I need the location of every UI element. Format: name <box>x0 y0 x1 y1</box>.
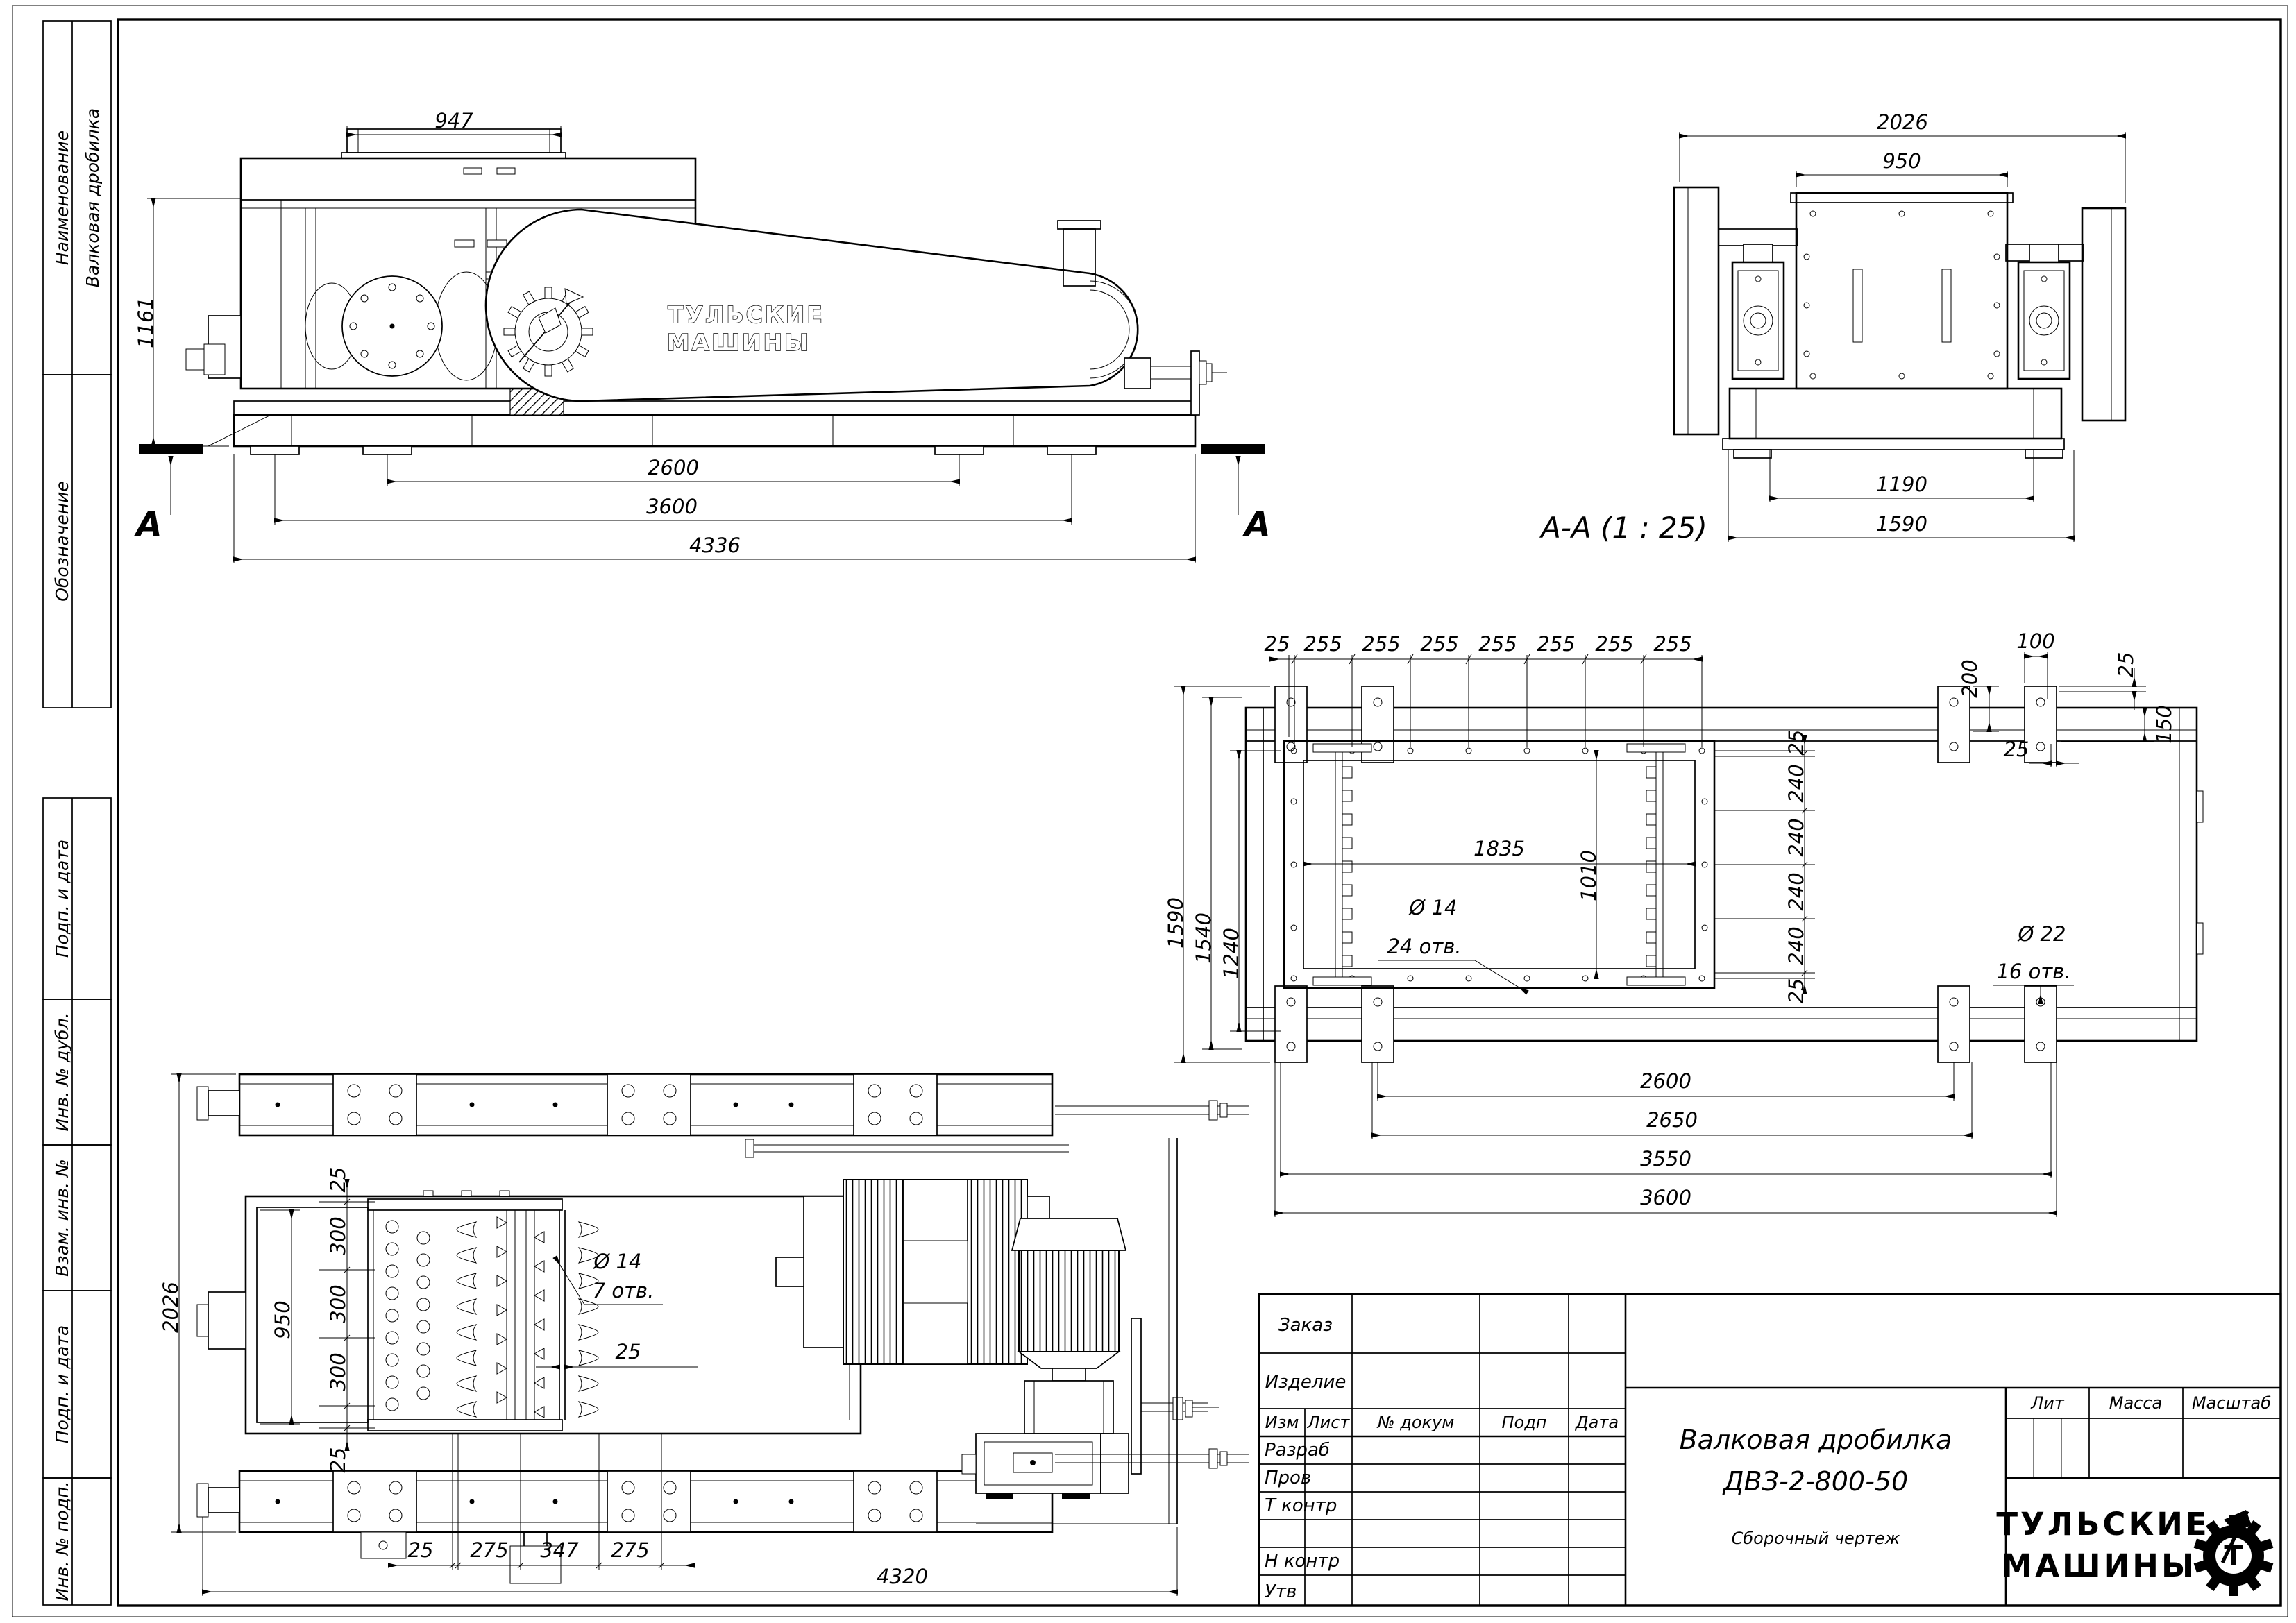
dim-2026-section: 2026 <box>1877 110 1928 134</box>
dim-947: 947 <box>434 109 473 133</box>
dim-100: 100 <box>2016 629 2054 653</box>
company-logo-text-1: ТУЛЬСКИЕ <box>1996 1506 2209 1543</box>
dim-950-top: 950 <box>271 1300 294 1339</box>
roll-teeth <box>386 1210 598 1420</box>
belt-guard: ТУЛЬСКИЕ МАШИНЫ <box>486 210 1138 401</box>
title-header-list: Лист <box>1307 1413 1351 1432</box>
guard-logo-text-2: МАШИНЫ <box>667 329 811 356</box>
dim-rchain-240: 240 <box>1784 818 1808 856</box>
top-view: 2026 950 25 300 300 300 25 Ø 14 7 отв. 2… <box>159 1074 1249 1596</box>
title-row-nkontr: Н контр <box>1265 1551 1340 1572</box>
title-row-prov: Пров <box>1265 1468 1311 1488</box>
title-header-dokum: № докум <box>1376 1413 1455 1432</box>
sidebar-label-podp1: Подп. и дата <box>52 840 72 958</box>
company-logo-letter: Т <box>2224 1540 2243 1572</box>
dim-25-corner-a: 25 <box>2114 652 2138 678</box>
section-letter-right: А <box>1242 505 1270 544</box>
frame-plan-view: 25 255 255 255 255 255 255 255 1590 1540… <box>1164 629 2203 1217</box>
title-header-podp: Подп <box>1501 1413 1546 1432</box>
dim-25-corner-b: 25 <box>2004 738 2029 761</box>
title-izdelie: Изделие <box>1265 1372 1347 1393</box>
title-product-code: ДВЗ-2-800-50 <box>1722 1466 1908 1497</box>
mounting-plates <box>1275 686 2057 1062</box>
top-view-structure <box>197 1074 1249 1583</box>
dim-1190: 1190 <box>1876 473 1927 496</box>
note-holes14-count: 24 отв. <box>1387 935 1461 958</box>
dim-rchain-25: 25 <box>1784 730 1808 756</box>
dim-1010: 1010 <box>1577 850 1601 901</box>
sidebar-label-invdubl: Инв. № дубл. <box>52 1012 72 1131</box>
section-letter-left: А <box>133 505 162 544</box>
frame-plan-structure <box>1246 686 2203 1062</box>
dim-tchain-300: 300 <box>326 1352 350 1391</box>
title-lit: Лит <box>2030 1393 2065 1413</box>
company-logo: ТУЛЬСКИЕ МАШИНЫ Т <box>1996 1506 2273 1596</box>
crusher-subframe <box>1284 741 1714 988</box>
dim-1540: 1540 <box>1192 912 1215 964</box>
dim-chain-255: 255 <box>1303 632 1342 656</box>
title-row-utv: Утв <box>1265 1581 1297 1602</box>
dim-chain-255: 255 <box>1478 632 1517 656</box>
dim-bchain-25: 25 <box>408 1538 434 1562</box>
sidebar-label-oboznachenie: Обозначение <box>52 481 72 601</box>
title-masshtab: Масштаб <box>2192 1393 2271 1413</box>
sidebar-stamps: Наименование Валковая дробилка Обозначен… <box>43 21 111 1605</box>
sidebar-label-podp2: Подп. и дата <box>52 1325 72 1443</box>
dim-1240: 1240 <box>1219 928 1243 979</box>
dim-rchain-240: 240 <box>1784 926 1808 965</box>
title-row-tkontr: Т контр <box>1265 1495 1337 1516</box>
dim-2650: 2650 <box>1646 1108 1698 1132</box>
title-row-razrab: Разраб <box>1265 1440 1330 1461</box>
title-header-izm: Изм <box>1265 1413 1299 1432</box>
dim-1161: 1161 <box>134 297 158 348</box>
dim-4336: 4336 <box>689 534 741 557</box>
dim-rchain-240: 240 <box>1784 764 1808 802</box>
title-massa: Масса <box>2109 1393 2163 1413</box>
dim-chain-255: 255 <box>1653 632 1691 656</box>
dim-chain-255: 255 <box>1537 632 1575 656</box>
dim-chain-25: 25 <box>1265 632 1290 656</box>
sheet-frame <box>12 6 2288 1617</box>
section-structure <box>1674 187 2125 458</box>
sidebar-value-product: Валковая дробилка <box>83 108 103 287</box>
section-marks: А А <box>133 444 1270 544</box>
note-holes22-count: 16 отв. <box>1996 960 2070 983</box>
dim-tchain-300: 300 <box>326 1216 350 1255</box>
side-view: ТУЛЬСКИЕ МАШИНЫ 947 1161 2600 3600 4336 … <box>133 109 1270 563</box>
dim-chain-255: 255 <box>1362 632 1400 656</box>
dim-rchain-240: 240 <box>1784 872 1808 910</box>
title-product-name: Валковая дробилка <box>1680 1425 1952 1455</box>
dim-chain-255: 255 <box>1420 632 1458 656</box>
dim-1835: 1835 <box>1474 837 1525 860</box>
dim-950-section: 950 <box>1882 149 1921 173</box>
dim-25-liner: 25 <box>616 1340 641 1363</box>
section-view-label: А-А (1 : 25) <box>1539 511 1707 545</box>
section-dimensions: 2026 950 1190 1590 А-А (1 : 25) <box>1539 110 2125 545</box>
title-header-data: Дата <box>1575 1413 1619 1432</box>
dim-1590-plan: 1590 <box>1164 897 1188 949</box>
dim-3600-plan: 3600 <box>1640 1186 1691 1209</box>
dim-3600: 3600 <box>646 495 698 518</box>
note-holes14-top-dia: Ø 14 <box>593 1250 642 1273</box>
sidebar-label-invpodp: Инв. № подп. <box>52 1481 72 1601</box>
dim-150: 150 <box>2152 705 2176 743</box>
dim-chain-255: 255 <box>1595 632 1633 656</box>
note-holes22-dia: Ø 22 <box>2018 922 2066 946</box>
sidebar-label-naimenovanie: Наименование <box>52 130 72 265</box>
title-zakaz: Заказ <box>1278 1315 1333 1336</box>
title-doc-type: Сборочный чертеж <box>1732 1529 1900 1548</box>
note-holes14-top-count: 7 отв. <box>593 1279 655 1302</box>
dim-3550: 3550 <box>1640 1147 1691 1171</box>
dim-1590-section: 1590 <box>1876 512 1927 536</box>
note-holes14-dia: Ø 14 <box>1409 896 1458 919</box>
side-view-base <box>208 389 1195 454</box>
dim-4320: 4320 <box>877 1565 928 1588</box>
dim-200: 200 <box>1958 659 1982 697</box>
section-view: 2026 950 1190 1590 А-А (1 : 25) <box>1539 110 2125 545</box>
dim-2026-top: 2026 <box>159 1282 183 1333</box>
dim-bchain-347: 347 <box>540 1538 579 1562</box>
dim-tchain-300: 300 <box>326 1284 350 1323</box>
drawing-sheet: Наименование Валковая дробилка Обозначен… <box>0 0 2296 1623</box>
title-block: Заказ Изделие Изм Лист № докум Подп Дата… <box>1259 1294 2281 1606</box>
dim-tchain-25: 25 <box>326 1447 350 1473</box>
dim-tchain-25: 25 <box>326 1167 350 1193</box>
guard-logo-text-1: ТУЛЬСКИЕ <box>668 301 825 328</box>
dim-2600: 2600 <box>648 456 699 479</box>
dim-2600-plan: 2600 <box>1640 1069 1691 1093</box>
company-logo-text-2: МАШИНЫ <box>2001 1547 2196 1584</box>
sidebar-label-vzaminv: Взам. инв. № <box>52 1159 72 1277</box>
dim-bchain-275: 275 <box>470 1538 508 1562</box>
dim-bchain-275: 275 <box>611 1538 649 1562</box>
dim-rchain-25: 25 <box>1784 978 1808 1004</box>
